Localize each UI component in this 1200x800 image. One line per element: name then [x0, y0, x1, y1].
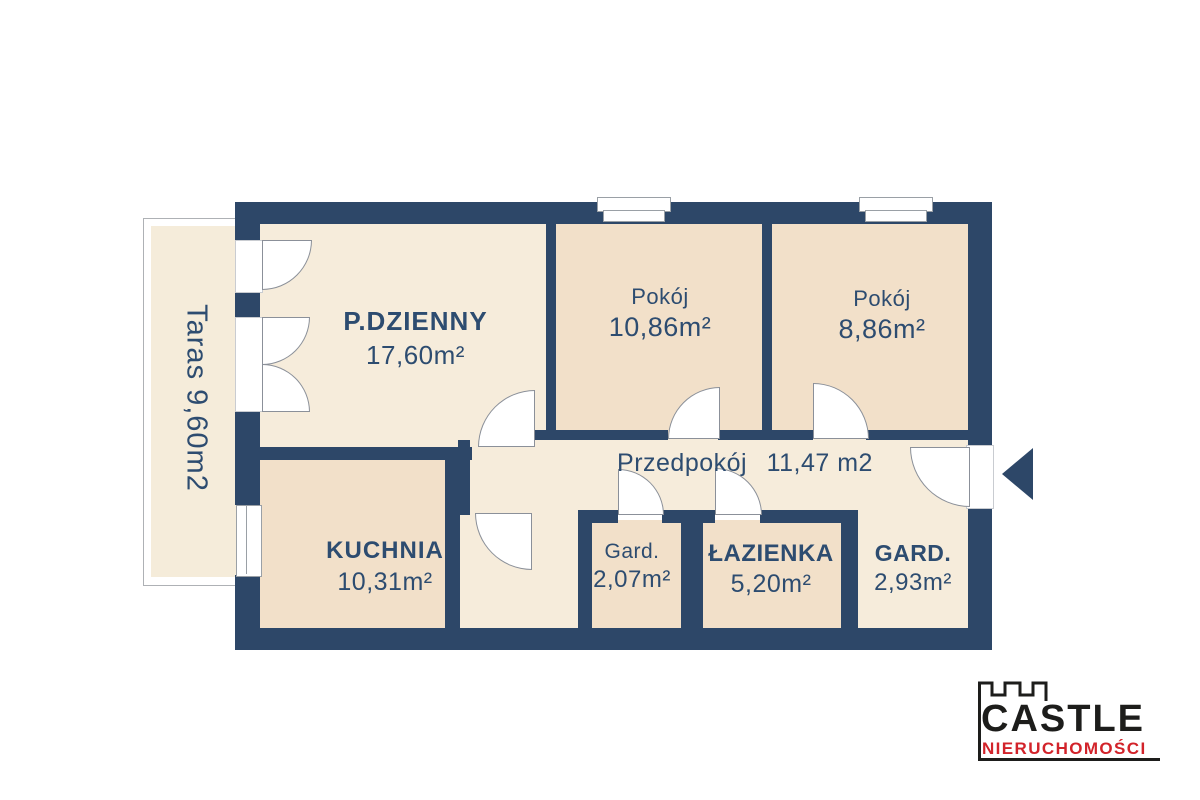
wall-kitchen-top: [258, 447, 472, 460]
room-area: 8,86m²: [782, 314, 982, 345]
kitchen-label: KUCHNIA 10,31m²: [285, 537, 485, 597]
wall-hallway-top: [866, 430, 968, 440]
room-area: 2,93m²: [858, 569, 968, 597]
room-name: KUCHNIA: [285, 537, 485, 565]
wall-hallway-bottom: [760, 510, 843, 523]
room-name: Gard.: [586, 540, 678, 564]
logo-underline: [978, 758, 1160, 761]
wardrobe2-label: GARD. 2,93m²: [858, 540, 968, 597]
room-name: GARD.: [858, 540, 968, 567]
window-kitchen-icon: [236, 505, 262, 577]
wall-hallway-top: [533, 430, 668, 440]
wall-living-bedroom1: [546, 224, 556, 437]
agency-name: CASTLE: [981, 698, 1161, 741]
floor-plan-canvas: Taras 9,60m2 P.DZIENNY 17,60m² Pokój 10,…: [0, 0, 1200, 800]
wall-hallway-top: [718, 430, 813, 440]
wall-outer-left: [235, 202, 260, 240]
room-area: 10,31m²: [285, 568, 485, 597]
terrace-door-opening: [235, 240, 263, 293]
room-area: 17,60m²: [288, 340, 543, 371]
room-name: Pokój: [782, 286, 982, 312]
wall-outer-bottom: [235, 628, 992, 650]
room-area: 10,86m²: [560, 312, 760, 343]
room-name: Przedpokój: [617, 449, 747, 477]
hallway-label: Przedpokój 11,47 m2: [560, 449, 930, 478]
room-name: ŁAZIENKA: [696, 540, 846, 568]
room-area: 11,47 m2: [767, 449, 873, 477]
room-name: Pokój: [560, 284, 760, 310]
agency-tagline: NIERUCHOMOŚCI: [982, 739, 1162, 759]
room-name: P.DZIENNY: [288, 306, 543, 337]
window-kitchen-icon: [246, 506, 247, 574]
living-room-label: P.DZIENNY 17,60m²: [288, 306, 543, 371]
entrance-arrow-icon: [1002, 448, 1033, 500]
room-area: 2,07m²: [586, 566, 678, 594]
bathroom-label: ŁAZIENKA 5,20m²: [696, 540, 846, 599]
wardrobe1-label: Gard. 2,07m²: [586, 540, 678, 594]
terrace-double-door-opening: [235, 317, 263, 412]
agency-logo: CASTLE NIERUCHOMOŚCI: [975, 670, 1165, 775]
wall-outer-left: [235, 291, 260, 317]
window-bedroom1-icon: [603, 210, 665, 222]
bedroom2-label: Pokój 8,86m²: [782, 286, 982, 345]
window-bedroom2-icon: [865, 210, 927, 222]
terrace-label: Taras 9,60m2: [180, 304, 213, 492]
bedroom1-label: Pokój 10,86m²: [560, 284, 760, 343]
wall-bedroom1-bedroom2: [762, 224, 772, 437]
entrance-door-opening: [966, 445, 994, 509]
room-area: 5,20m²: [696, 570, 846, 599]
wall-outer-left: [235, 410, 260, 505]
